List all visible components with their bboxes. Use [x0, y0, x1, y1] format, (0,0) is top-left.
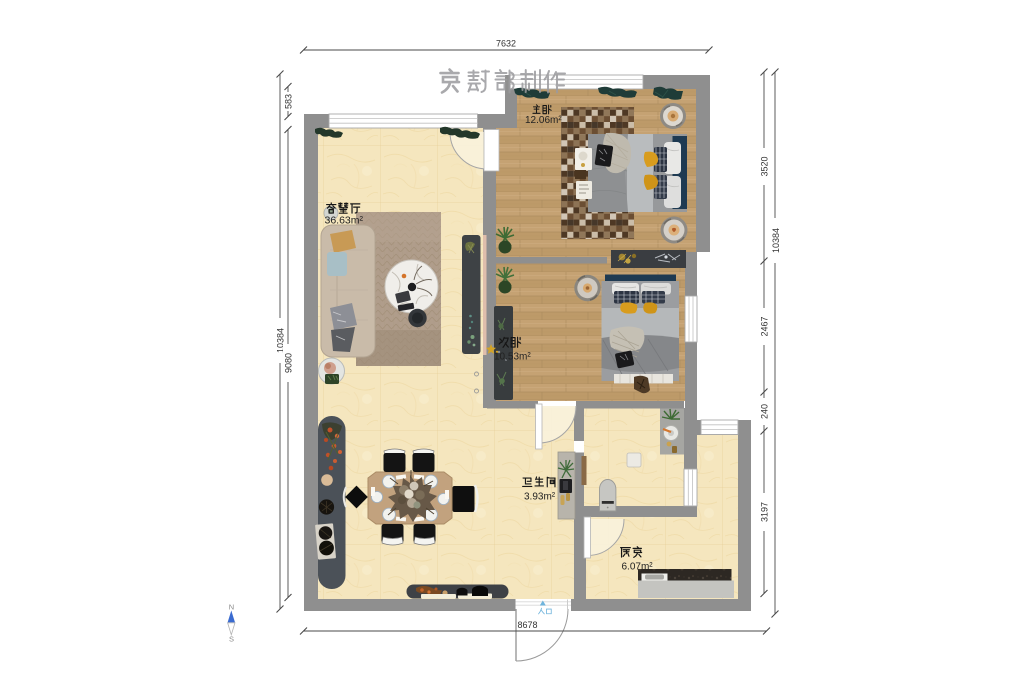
svg-text:583: 583 [284, 94, 294, 109]
svg-text:9080: 9080 [284, 353, 294, 373]
svg-text:12.06m²: 12.06m² [525, 115, 562, 126]
svg-text:36.63m²: 36.63m² [325, 215, 364, 227]
svg-text:3520: 3520 [760, 156, 770, 176]
svg-text:N: N [229, 603, 234, 612]
svg-text:7632: 7632 [496, 39, 516, 49]
svg-text:10384: 10384 [771, 228, 781, 253]
svg-text:3.93m²: 3.93m² [524, 492, 556, 503]
svg-text:240: 240 [760, 404, 770, 419]
svg-text:6.07m²: 6.07m² [622, 562, 654, 573]
svg-text:S: S [229, 635, 234, 644]
svg-text:2467: 2467 [760, 316, 770, 336]
svg-text:10.53m²: 10.53m² [494, 352, 531, 363]
svg-text:3197: 3197 [760, 502, 770, 522]
svg-text:8678: 8678 [517, 620, 537, 630]
